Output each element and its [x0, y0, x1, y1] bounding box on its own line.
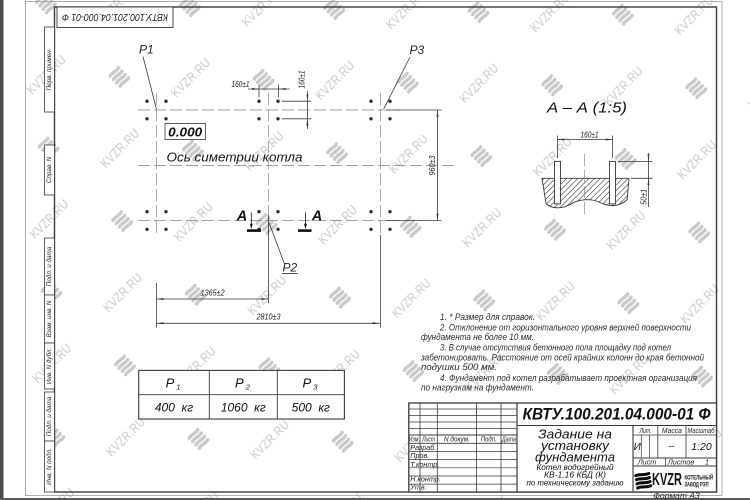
svg-text:подушки 500 мм.: подушки 500 мм.: [421, 362, 497, 373]
svg-text:Р1: Р1: [139, 43, 154, 57]
svg-text:Дата: Дата: [501, 434, 516, 443]
svg-text:2810±3: 2810±3: [256, 312, 281, 321]
svg-text:Инв. N дубл.: Инв. N дубл.: [45, 348, 53, 384]
svg-text:Р: Р: [302, 376, 311, 391]
svg-text:фундамента не более 10 мм.: фундамента не более 10 мм.: [421, 332, 534, 343]
svg-text:ЗАВОД РЭП: ЗАВОД РЭП: [685, 482, 709, 489]
svg-text:KVZR: KVZR: [652, 469, 682, 489]
svg-text:по нагрузкам на фундамент.: по нагрузкам на фундамент.: [421, 383, 534, 394]
svg-text:160±1: 160±1: [232, 80, 250, 89]
svg-text:Утв.: Утв.: [409, 483, 426, 492]
svg-text:Ось симетрии котла: Ось симетрии котла: [167, 151, 303, 165]
svg-text:Перв. примен.: Перв. примен.: [46, 49, 53, 91]
svg-text:1: 1: [705, 458, 709, 467]
svg-text:КВТУ.100.201.04.000-01 Ф: КВТУ.100.201.04.000-01 Ф: [62, 11, 168, 23]
svg-text:Подп. и дата: Подп. и дата: [45, 246, 53, 286]
svg-text:Р2: Р2: [283, 261, 298, 275]
svg-text:Масштаб: Масштаб: [688, 426, 716, 435]
svg-text:1:20: 1:20: [691, 441, 712, 453]
svg-text:Р: Р: [166, 376, 175, 391]
svg-text:1365±2: 1365±2: [201, 288, 225, 297]
svg-text:А: А: [311, 209, 322, 225]
svg-text:КОТЕЛЬНЫЙ: КОТЕЛЬНЫЙ: [685, 473, 714, 482]
svg-text:Изм.: Изм.: [409, 434, 420, 443]
svg-text:160±1: 160±1: [581, 131, 599, 140]
svg-text:2: 2: [245, 383, 251, 392]
svg-text:960±3: 960±3: [428, 155, 437, 175]
svg-text:Пров.: Пров.: [410, 451, 429, 460]
svg-text:А: А: [236, 209, 247, 225]
svg-text:А – А (1:5): А – А (1:5): [546, 101, 627, 117]
svg-text:N докум.: N докум.: [444, 434, 470, 443]
svg-text:Взам. инв. N: Взам. инв. N: [46, 300, 53, 337]
svg-text:Справ. N: Справ. N: [46, 156, 53, 183]
svg-text:–: –: [668, 441, 675, 452]
svg-text:Подп. и дата: Подп. и дата: [45, 396, 53, 436]
svg-text:Масса: Масса: [662, 426, 682, 435]
svg-text:Инв. N подл.: Инв. N подл.: [45, 448, 53, 485]
svg-text:160±1: 160±1: [298, 71, 307, 89]
svg-text:И: И: [634, 442, 642, 453]
svg-text:Листов: Листов: [667, 458, 694, 467]
svg-text:Подп.: Подп.: [481, 434, 497, 443]
svg-text:0.000: 0.000: [168, 124, 203, 139]
svg-text:Лист: Лист: [637, 458, 657, 467]
svg-text:Формат А3: Формат А3: [653, 491, 700, 500]
svg-text:КВТУ.100.201.04.000-01 Ф: КВТУ.100.201.04.000-01 Ф: [523, 406, 711, 424]
svg-text:Р: Р: [235, 376, 244, 391]
svg-text:500 кг: 500 кг: [292, 401, 330, 415]
svg-text:по техническому заданию: по техническому заданию: [527, 478, 624, 487]
svg-text:1: 1: [176, 383, 180, 392]
svg-text:Лит.: Лит.: [639, 426, 652, 435]
svg-text:400 кг: 400 кг: [155, 401, 193, 415]
svg-text:Лист: Лист: [421, 434, 435, 443]
svg-text:Р3: Р3: [410, 43, 425, 57]
svg-text:1060 кг: 1060 кг: [221, 401, 266, 415]
svg-text:50±1: 50±1: [639, 189, 648, 205]
svg-text:Т.контр.: Т.контр.: [410, 460, 439, 469]
